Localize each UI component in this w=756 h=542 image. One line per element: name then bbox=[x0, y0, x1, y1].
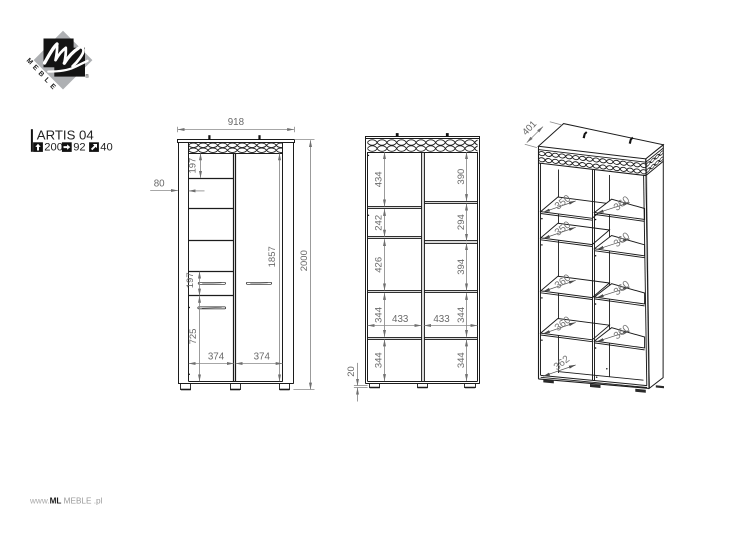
svg-text:www.ML MEBLE .pl: www.ML MEBLE .pl bbox=[29, 497, 103, 506]
svg-text:918: 918 bbox=[228, 117, 245, 128]
svg-text:242: 242 bbox=[374, 215, 385, 231]
svg-text:433: 433 bbox=[433, 314, 450, 325]
svg-text:197: 197 bbox=[188, 158, 199, 174]
svg-text:92: 92 bbox=[73, 141, 85, 153]
svg-text:725: 725 bbox=[188, 329, 199, 345]
svg-text:294: 294 bbox=[456, 214, 467, 230]
svg-text:2000: 2000 bbox=[299, 250, 310, 271]
svg-text:L: L bbox=[43, 77, 51, 85]
svg-text:374: 374 bbox=[254, 351, 271, 362]
svg-text:344: 344 bbox=[456, 307, 467, 323]
svg-text:344: 344 bbox=[456, 352, 467, 368]
svg-text:1857: 1857 bbox=[267, 246, 278, 267]
svg-text:390: 390 bbox=[456, 169, 467, 185]
svg-text:433: 433 bbox=[392, 314, 409, 325]
svg-text:80: 80 bbox=[154, 179, 165, 190]
svg-text:434: 434 bbox=[374, 171, 385, 187]
svg-text:200: 200 bbox=[44, 141, 63, 153]
svg-text:374: 374 bbox=[208, 351, 225, 362]
svg-text:40: 40 bbox=[100, 141, 112, 153]
svg-text:394: 394 bbox=[456, 259, 467, 275]
svg-text:E: E bbox=[48, 83, 56, 91]
svg-text:B: B bbox=[37, 70, 46, 79]
svg-text:344: 344 bbox=[374, 307, 385, 323]
svg-text:ARTIS 04: ARTIS 04 bbox=[37, 127, 94, 142]
svg-text:362: 362 bbox=[552, 354, 572, 373]
svg-text:E: E bbox=[31, 64, 39, 72]
svg-text:®: ® bbox=[85, 73, 89, 80]
svg-text:344: 344 bbox=[374, 352, 385, 368]
svg-text:20: 20 bbox=[346, 366, 357, 377]
svg-text:M: M bbox=[25, 57, 34, 66]
svg-text:197: 197 bbox=[185, 272, 196, 288]
svg-text:401: 401 bbox=[520, 119, 539, 138]
svg-text:426: 426 bbox=[374, 257, 385, 273]
